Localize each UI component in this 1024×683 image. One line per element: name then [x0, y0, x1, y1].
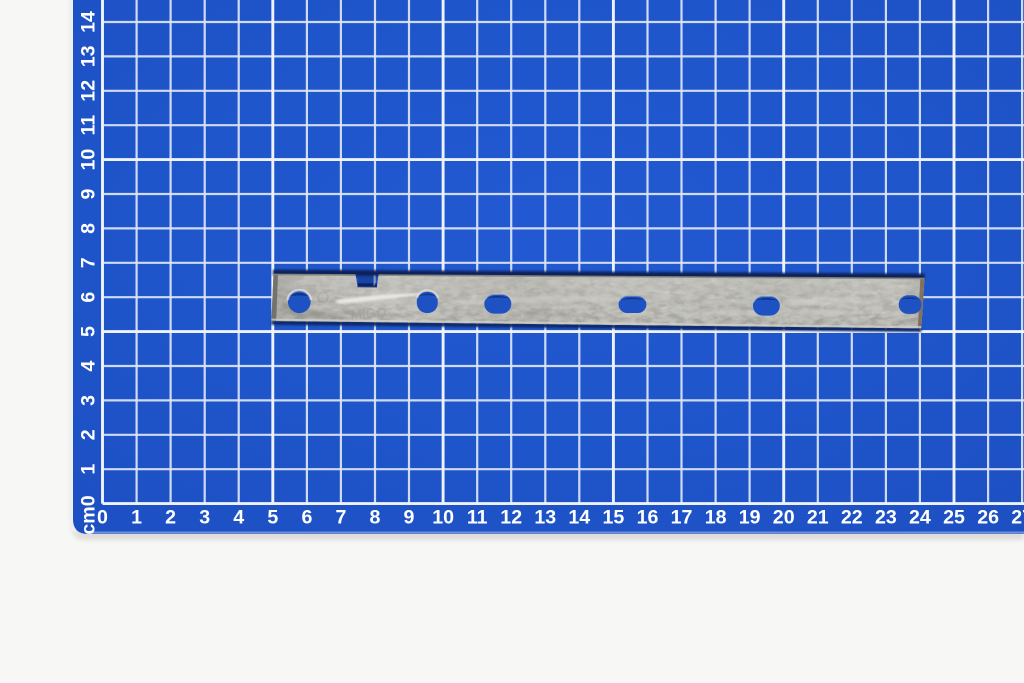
svg-text:cm0: cm0	[78, 495, 100, 534]
svg-text:21: 21	[807, 507, 829, 529]
svg-text:2: 2	[78, 429, 100, 440]
svg-text:7: 7	[335, 507, 346, 529]
svg-text:24: 24	[909, 507, 931, 529]
svg-text:3: 3	[78, 395, 100, 406]
svg-text:4: 4	[78, 360, 100, 371]
svg-text:11: 11	[467, 507, 488, 529]
svg-text:13: 13	[78, 45, 100, 67]
svg-text:2: 2	[165, 507, 176, 529]
svg-text:18: 18	[705, 507, 727, 529]
svg-text:8: 8	[78, 223, 100, 234]
svg-text:20: 20	[773, 507, 795, 529]
svg-text:9: 9	[404, 507, 415, 529]
svg-text:15: 15	[603, 507, 625, 529]
svg-text:5: 5	[267, 507, 278, 529]
svg-text:14: 14	[568, 507, 590, 529]
svg-text:9: 9	[78, 188, 100, 199]
svg-text:10: 10	[78, 149, 100, 171]
svg-text:26: 26	[977, 507, 999, 529]
svg-text:3: 3	[199, 507, 210, 529]
svg-text:4: 4	[233, 507, 244, 529]
svg-text:6: 6	[301, 507, 312, 529]
svg-text:MIGO: MIGO	[350, 304, 387, 322]
svg-text:22: 22	[841, 507, 863, 529]
svg-text:13: 13	[534, 507, 556, 529]
svg-text:11: 11	[78, 115, 100, 136]
svg-text:27: 27	[1011, 507, 1024, 529]
svg-text:8: 8	[370, 507, 381, 529]
svg-text:23: 23	[875, 507, 897, 529]
svg-text:10: 10	[432, 507, 454, 529]
svg-text:19: 19	[739, 507, 761, 529]
svg-text:12: 12	[78, 80, 100, 102]
svg-text:12: 12	[500, 507, 522, 529]
svg-text:14: 14	[78, 11, 100, 33]
svg-text:1: 1	[131, 507, 142, 529]
svg-text:17: 17	[671, 507, 693, 529]
svg-text:25: 25	[943, 507, 965, 529]
svg-text:6: 6	[78, 292, 100, 303]
svg-text:7: 7	[78, 257, 100, 268]
svg-text:1: 1	[78, 464, 100, 475]
svg-text:16: 16	[637, 507, 659, 529]
svg-text:5: 5	[78, 326, 100, 337]
